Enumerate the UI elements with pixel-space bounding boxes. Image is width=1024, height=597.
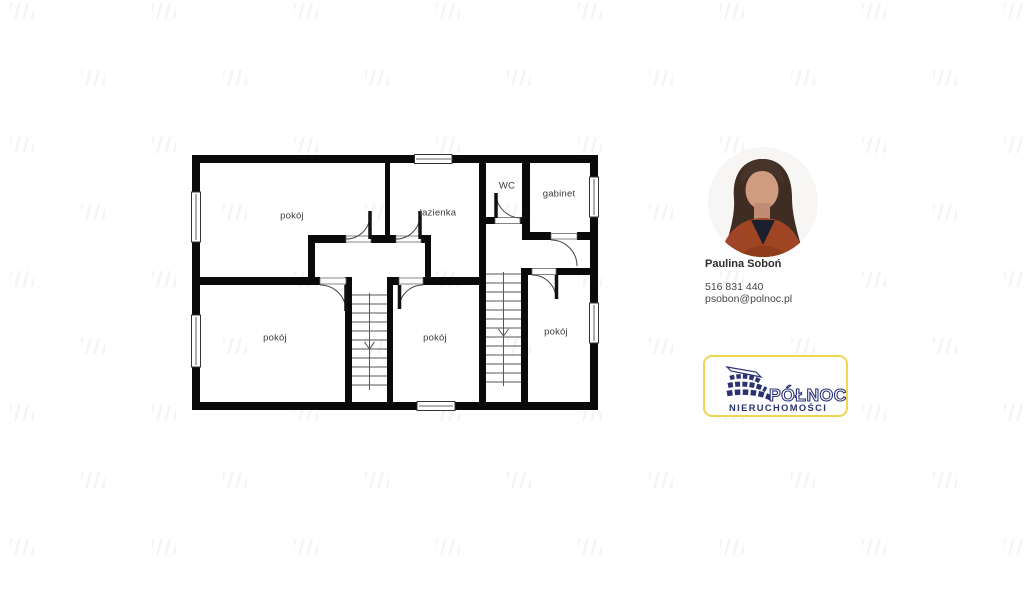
room-label-pokoj-bottom-left: pokój: [263, 333, 287, 344]
door-arc-gabinet: [551, 240, 577, 266]
room-label-gabinet: gabinet: [543, 189, 576, 200]
brand-logo: PÓŁNOC NIERUCHOMOŚCI: [703, 355, 848, 417]
door-arc-pokoj-bl: [320, 285, 346, 311]
room-label-wc: WC: [499, 181, 515, 192]
agent-phone: 516 831 440: [705, 281, 763, 293]
room-label-pokoj-top-left: pokój: [280, 211, 304, 222]
door-arc-pokoj-bc: [399, 285, 423, 309]
stairs-central: [352, 293, 387, 390]
door-arc-pokoj-br: [532, 275, 556, 299]
agent-email: psobon@polnoc.pl: [705, 293, 792, 305]
agent-photo: [708, 147, 818, 257]
room-label-pokoj-bottom-right: pokój: [544, 327, 568, 338]
room-label-lazienka: łazienka: [420, 208, 456, 219]
neck: [754, 203, 770, 219]
room-label-pokoj-bottom-center: pokój: [423, 333, 447, 344]
door-arc-pokoj-tl: [346, 215, 370, 239]
stairs-right: [486, 272, 521, 386]
door-openings: [320, 218, 577, 285]
door-arc-wc: [496, 193, 521, 218]
logo-subtext: NIERUCHOMOŚCI: [729, 402, 827, 413]
logo-text: PÓŁNOC: [769, 384, 846, 405]
logo-swoosh-icon: [727, 376, 771, 398]
door-arc-lazienka: [396, 215, 420, 239]
floor-plan: [0, 0, 1024, 597]
brand-logo-graphic: PÓŁNOC NIERUCHOMOŚCI: [705, 357, 846, 415]
listing-image: pokój łazienka WC gabinet pokój pokój po…: [0, 0, 1024, 597]
agent-name: Paulina Soboń: [705, 258, 781, 270]
walls: [192, 155, 598, 410]
